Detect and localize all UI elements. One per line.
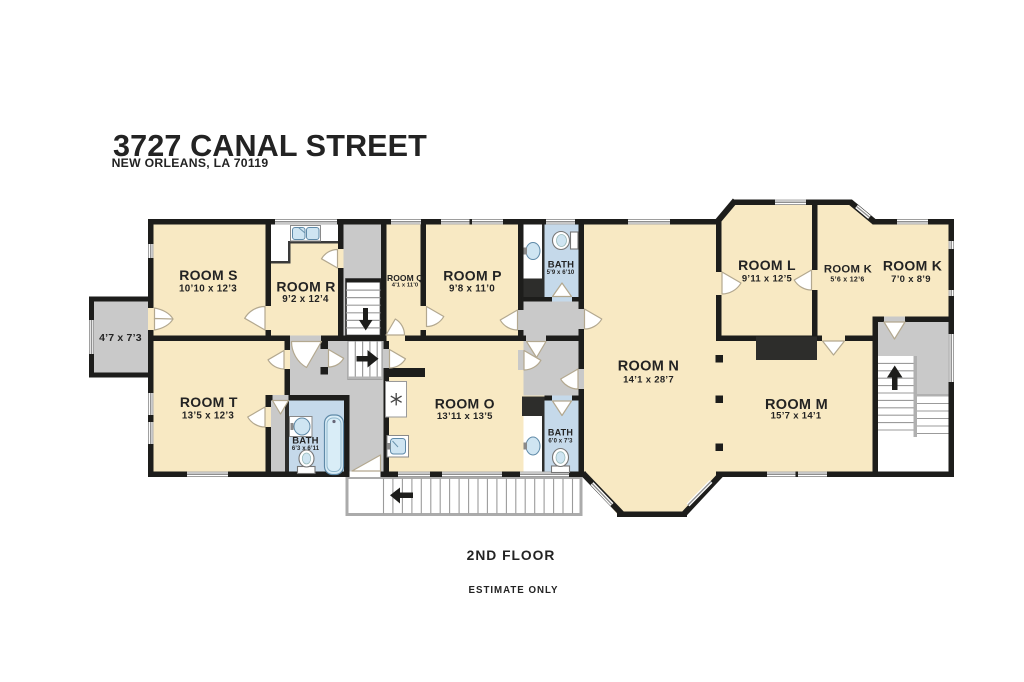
svg-text:9’2 x 12’4: 9’2 x 12’4 [282,294,329,305]
svg-text:ROOM T: ROOM T [180,394,238,410]
svg-text:ROOM Q: ROOM Q [387,273,423,283]
svg-text:BATH: BATH [548,260,574,271]
svg-text:ROOM N: ROOM N [618,359,679,375]
svg-text:14’1 x 28’7: 14’1 x 28’7 [623,375,674,386]
svg-text:7’0 x 8’9: 7’0 x 8’9 [891,274,931,285]
svg-text:13’11 x 13’5: 13’11 x 13’5 [437,411,493,422]
svg-text:9’8 x 11’0: 9’8 x 11’0 [449,284,495,295]
svg-text:15’7 x 14’1: 15’7 x 14’1 [771,411,822,422]
svg-text:6’3 x 6’11: 6’3 x 6’11 [292,446,320,452]
svg-text:10’10 x 12’3: 10’10 x 12’3 [179,284,237,295]
svg-text:ROOM R: ROOM R [276,279,335,295]
svg-text:BATH: BATH [548,428,573,438]
svg-text:ROOM K: ROOM K [824,264,873,276]
svg-text:9’11 x 12’5: 9’11 x 12’5 [742,274,793,285]
svg-text:6’0 x 7’3: 6’0 x 7’3 [548,439,573,445]
svg-text:NEW ORLEANS, LA 70119: NEW ORLEANS, LA 70119 [112,156,269,170]
svg-text:4’7 x 7’3: 4’7 x 7’3 [99,332,142,344]
svg-text:13’5 x 12’3: 13’5 x 12’3 [182,411,235,422]
svg-text:ESTIMATE ONLY: ESTIMATE ONLY [469,585,559,596]
svg-text:2ND FLOOR: 2ND FLOOR [467,548,556,563]
svg-text:BATH: BATH [292,436,318,447]
svg-text:ROOM K: ROOM K [883,258,942,274]
svg-text:ROOM S: ROOM S [179,267,238,283]
svg-text:ROOM O: ROOM O [435,396,495,412]
svg-text:4’1 x 11’0: 4’1 x 11’0 [392,283,418,289]
svg-text:5’9 x 6’10: 5’9 x 6’10 [547,270,575,276]
svg-text:5’6 x 12’6: 5’6 x 12’6 [830,277,864,284]
svg-text:ROOM P: ROOM P [443,268,502,284]
svg-text:ROOM L: ROOM L [738,257,796,273]
